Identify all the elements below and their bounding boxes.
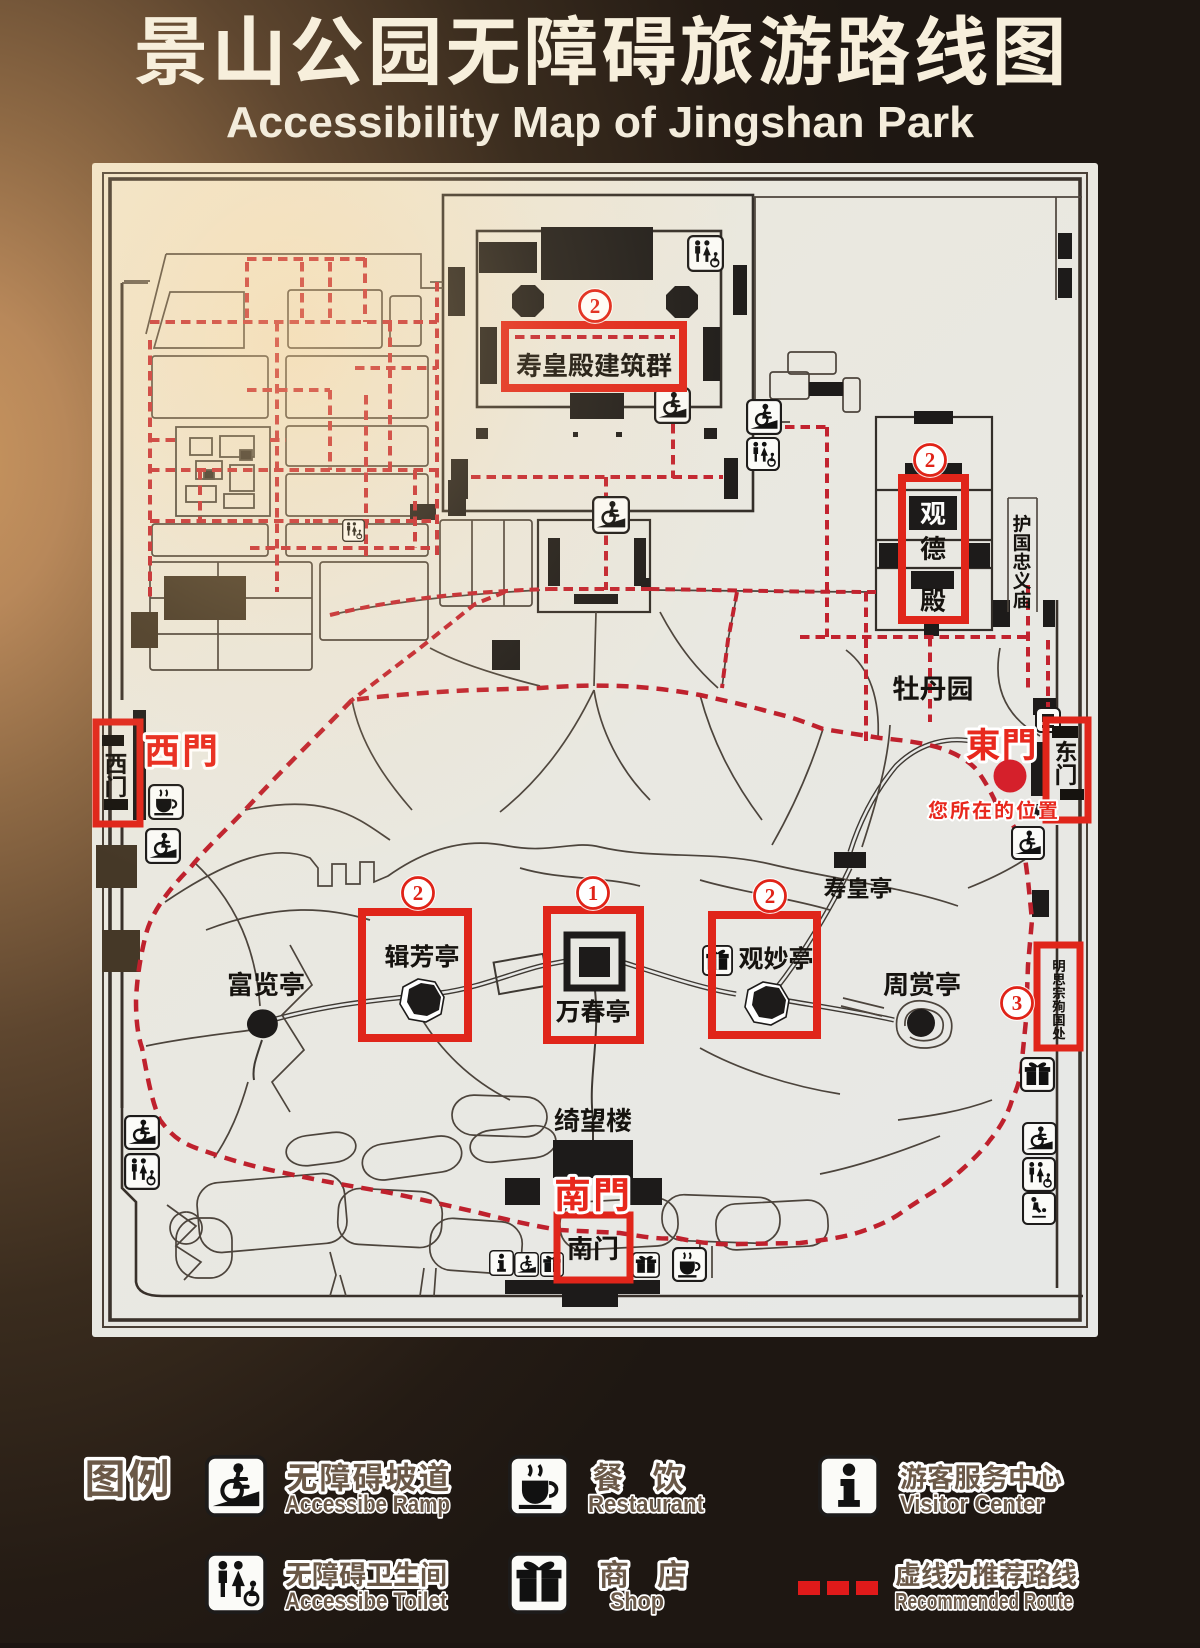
svg-text:Accessibe Ramp: Accessibe Ramp bbox=[285, 1491, 450, 1518]
svg-text:Accessibe Toilet: Accessibe Toilet bbox=[285, 1588, 447, 1615]
svg-text:Accessibility Map of Jingshan: Accessibility Map of Jingshan Park bbox=[226, 98, 975, 147]
svg-text:Restaurant: Restaurant bbox=[588, 1491, 704, 1518]
svg-text:Recommended Route: Recommended Route bbox=[895, 1588, 1073, 1614]
svg-text:Shop: Shop bbox=[610, 1588, 664, 1615]
svg-text:Visitor Center: Visitor Center bbox=[900, 1491, 1044, 1518]
